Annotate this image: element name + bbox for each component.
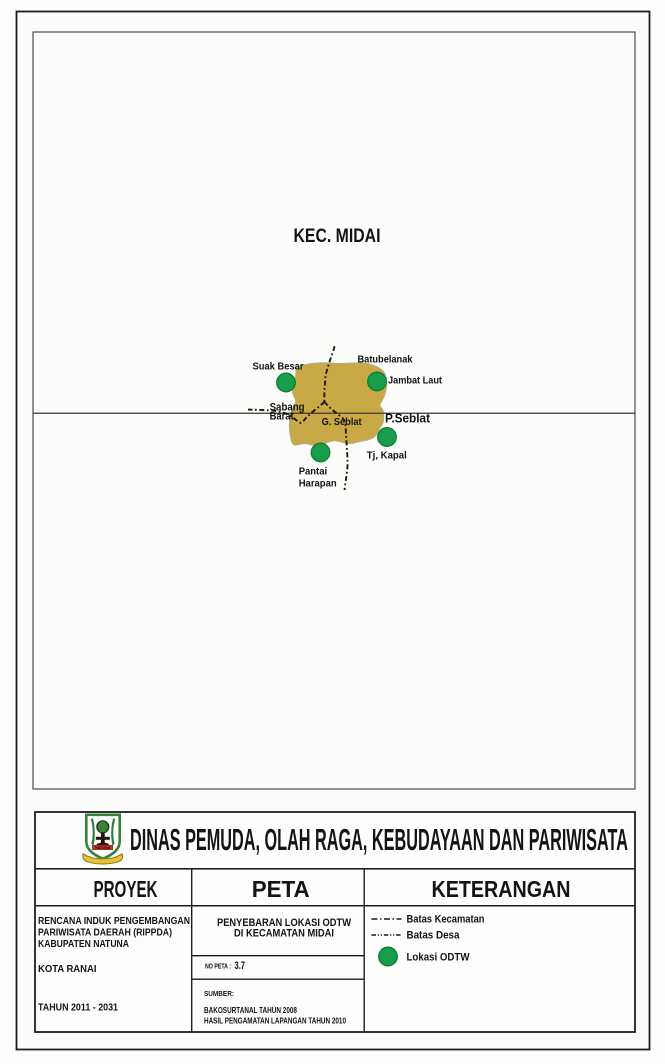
svg-text:3.7: 3.7 [235,960,246,972]
svg-text:TAHUN 2011 - 2031: TAHUN 2011 - 2031 [38,1002,118,1014]
svg-text:KOTA RANAI: KOTA RANAI [38,963,97,975]
svg-text:BAKOSURTANAL TAHUN 2008: BAKOSURTANAL TAHUN 2008 [204,1005,297,1015]
svg-text:Barat: Barat [270,410,294,422]
svg-text:NATUNA: NATUNA [95,846,110,850]
svg-text:Batubelanak: Batubelanak [358,354,413,366]
svg-text:Pantai: Pantai [299,466,327,478]
svg-text:Batas Desa: Batas Desa [407,930,461,942]
svg-text:HASIL PENGAMATAN LAPANGAN TAHU: HASIL PENGAMATAN LAPANGAN TAHUN 2010 [204,1016,346,1026]
svg-text:PROYEK: PROYEK [94,876,158,902]
svg-text:PETA: PETA [252,876,310,902]
svg-text:Lokasi ODTW: Lokasi ODTW [407,952,471,964]
svg-text:Batas Kecamatan: Batas Kecamatan [407,914,485,926]
svg-text:DI KECAMATAN MIDAI: DI KECAMATAN MIDAI [234,928,334,940]
svg-text:Tj, Kapal: Tj, Kapal [367,450,407,462]
svg-text:Jambat Laut: Jambat Laut [388,374,442,386]
svg-text:KETERANGAN: KETERANGAN [432,876,571,902]
svg-text:G. Seblat: G. Seblat [322,416,362,428]
svg-text:Harapan: Harapan [299,478,337,490]
svg-text:SUMBER:: SUMBER: [204,989,234,998]
svg-text:KEC. MIDAI: KEC. MIDAI [294,225,381,247]
svg-text:RENCANA INDUK PENGEMBANGAN: RENCANA INDUK PENGEMBANGAN [38,915,190,927]
svg-text:DINAS PEMUDA, OLAH RAGA, KEBUD: DINAS PEMUDA, OLAH RAGA, KEBUDAYAAN DAN … [130,822,628,857]
svg-text:Suak Besar: Suak Besar [253,361,304,373]
svg-text:P.Seblat: P.Seblat [385,412,431,426]
svg-text:KABUPATEN NATUNA: KABUPATEN NATUNA [38,938,129,950]
svg-text:PARIWISATA DAERAH (RIPPDA): PARIWISATA DAERAH (RIPPDA) [38,927,172,939]
svg-text:NO PETA :: NO PETA : [205,962,231,971]
